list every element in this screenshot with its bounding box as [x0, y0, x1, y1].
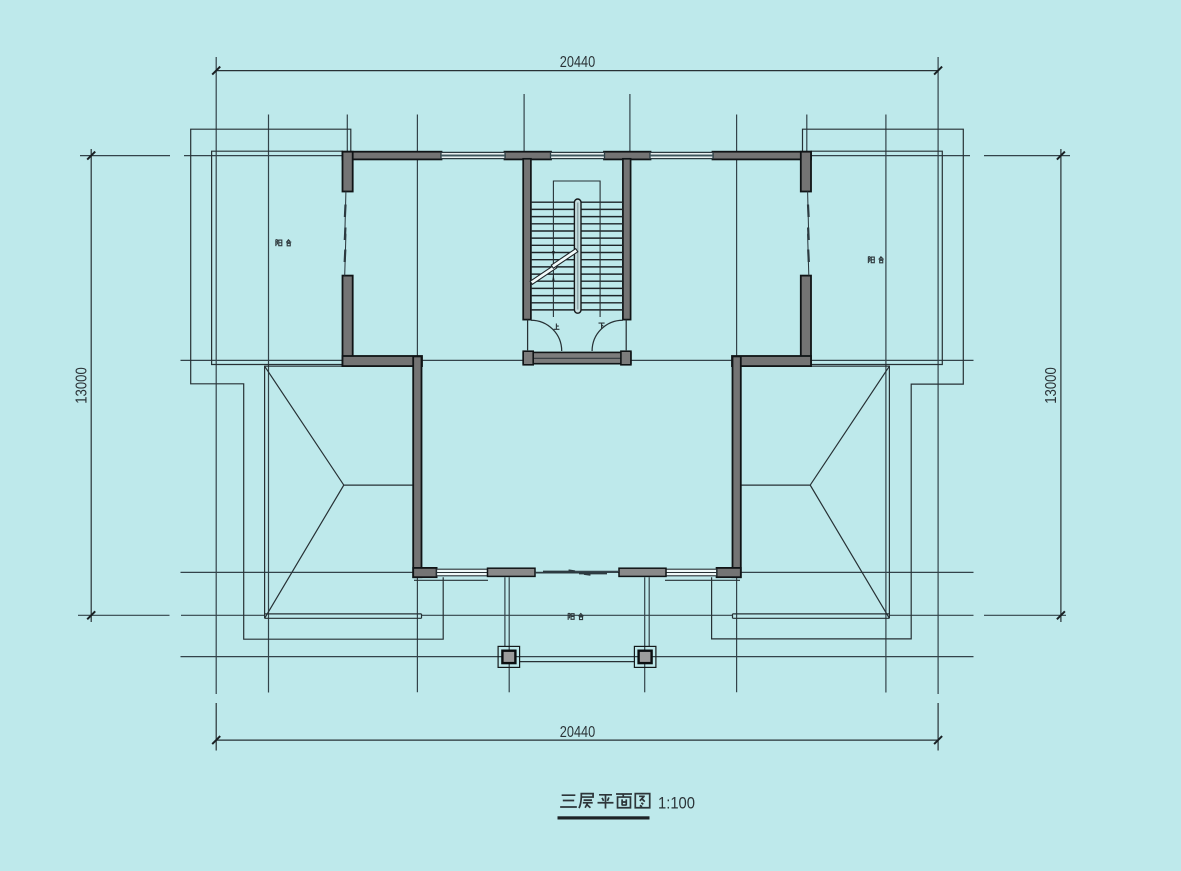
svg-text:13000: 13000: [1043, 367, 1060, 404]
svg-text:13000: 13000: [74, 367, 91, 404]
svg-text:20440: 20440: [560, 54, 596, 71]
svg-text:1:100: 1:100: [658, 795, 695, 813]
svg-text:20440: 20440: [560, 724, 596, 741]
